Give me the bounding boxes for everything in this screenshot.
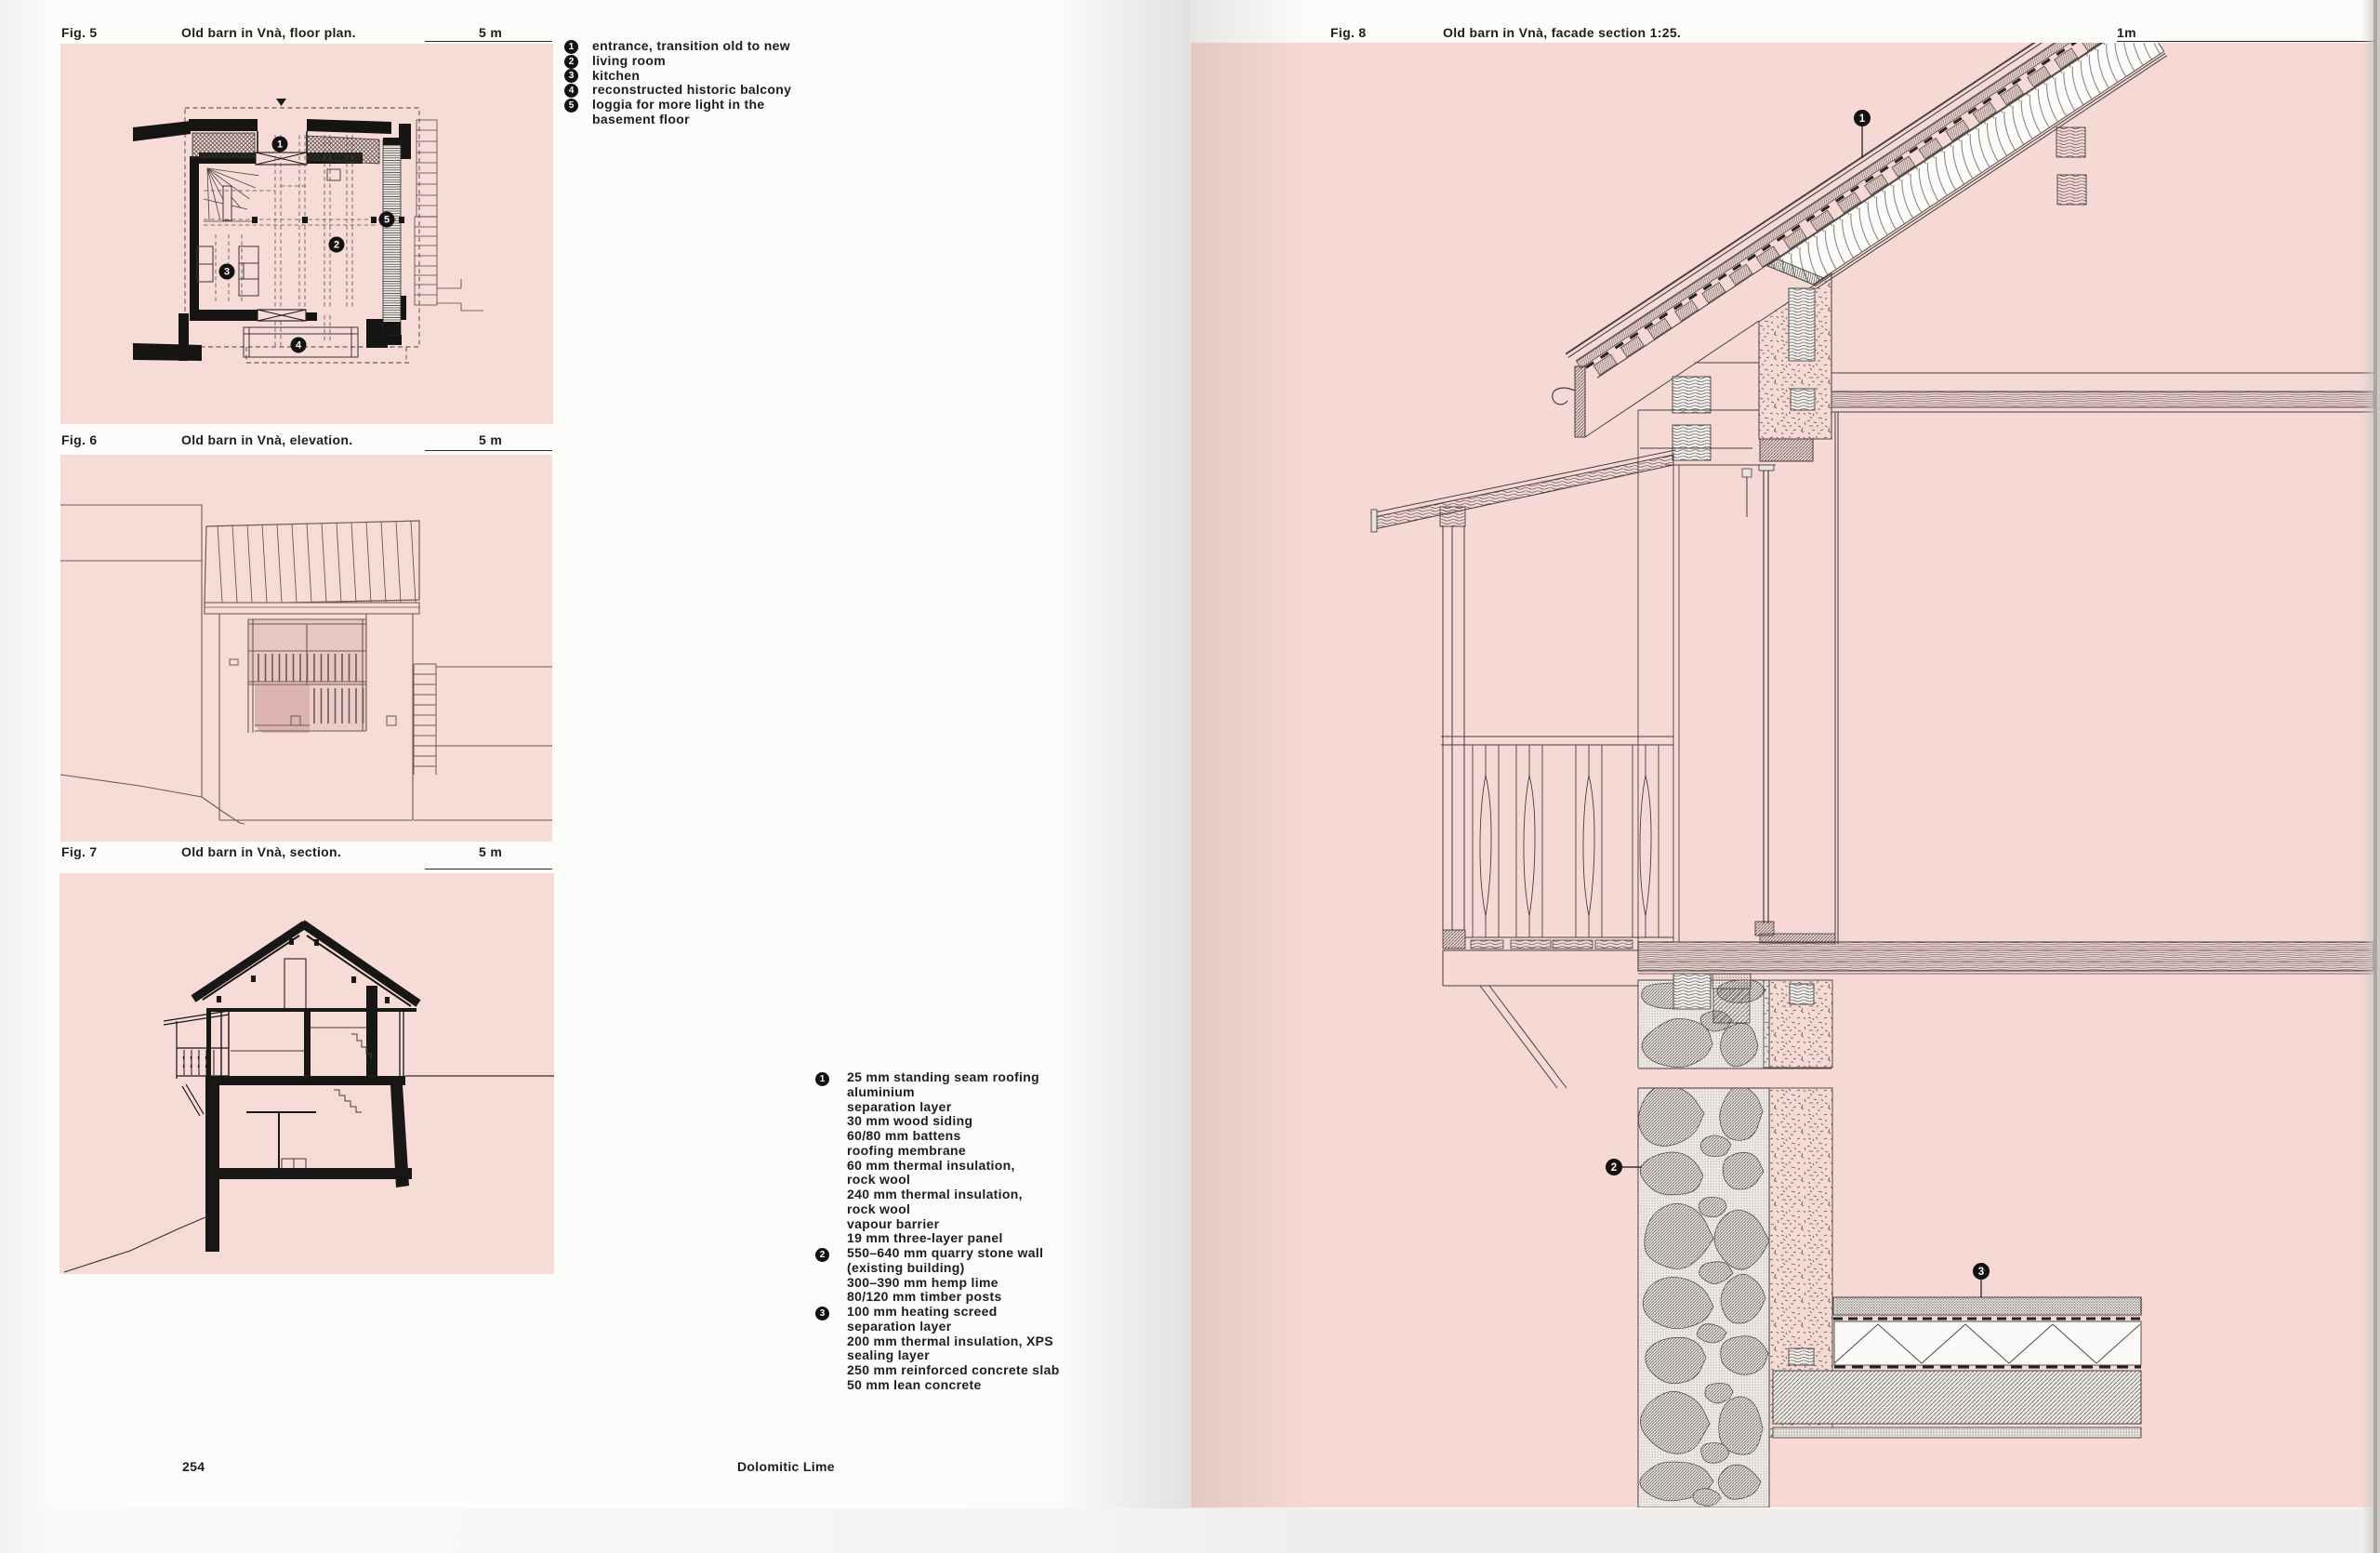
svg-text:3: 3 bbox=[1978, 1267, 1984, 1278]
svg-text:5: 5 bbox=[384, 215, 390, 226]
svg-text:1: 1 bbox=[1859, 113, 1866, 125]
svg-text:2: 2 bbox=[334, 240, 339, 251]
svg-text:4: 4 bbox=[296, 340, 302, 352]
svg-text:2: 2 bbox=[1611, 1162, 1617, 1174]
svg-text:3: 3 bbox=[224, 267, 230, 278]
svg-text:1: 1 bbox=[277, 139, 283, 151]
